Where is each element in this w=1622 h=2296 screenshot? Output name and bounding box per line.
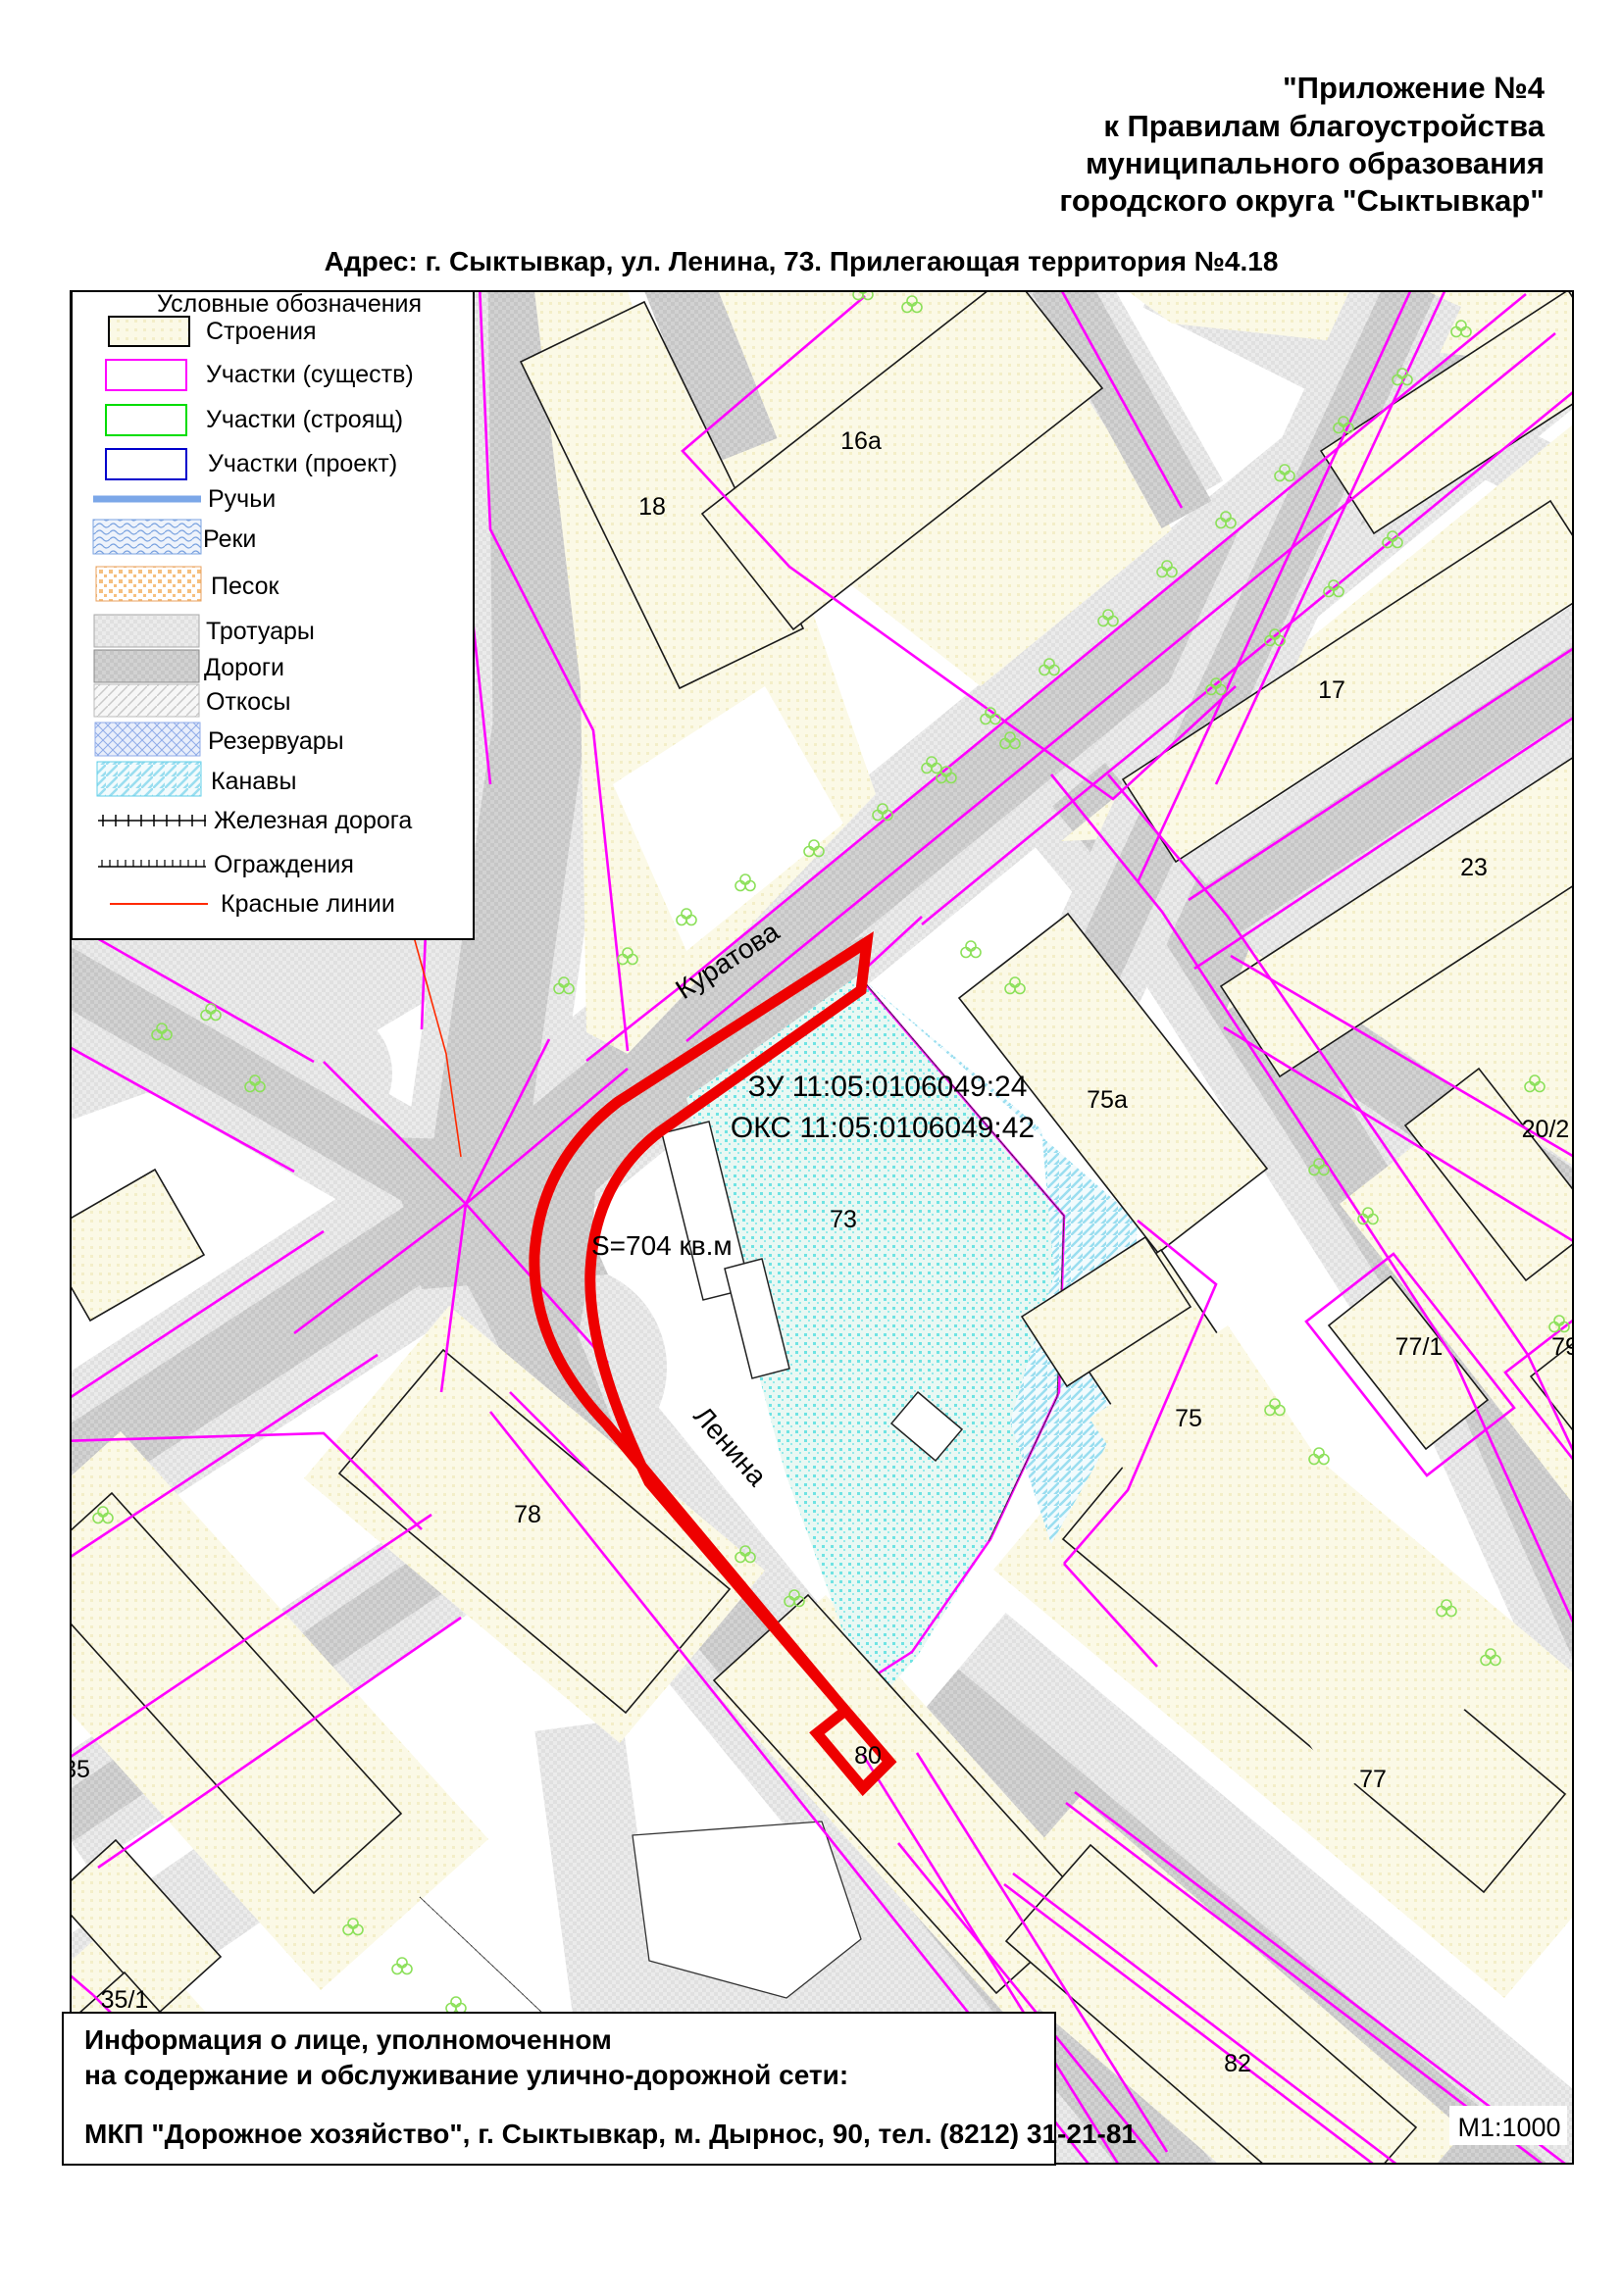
svg-text:Резервуары: Резервуары [208, 727, 344, 755]
svg-text:S=704 кв.м: S=704 кв.м [591, 1230, 733, 1261]
svg-text:77/1: 77/1 [1395, 1333, 1444, 1361]
svg-text:78: 78 [514, 1501, 541, 1528]
svg-text:муниципального образования: муниципального образования [1086, 146, 1545, 180]
svg-text:Участки (существ): Участки (существ) [206, 361, 414, 388]
svg-text:35/1: 35/1 [101, 1986, 149, 2014]
svg-text:Откосы: Откосы [206, 688, 291, 716]
svg-text:к Правилам благоустройства: к Правилам благоустройства [1103, 109, 1545, 143]
svg-text:Канавы: Канавы [211, 768, 296, 795]
svg-text:17: 17 [1318, 676, 1345, 704]
svg-text:"Приложение №4: "Приложение №4 [1283, 71, 1546, 105]
svg-text:Адрес: г. Сыктывкар, ул. Ленин: Адрес: г. Сыктывкар, ул. Ленина, 73. При… [325, 246, 1279, 276]
svg-text:Дороги: Дороги [204, 654, 284, 681]
svg-text:80: 80 [854, 1742, 882, 1770]
svg-text:75а: 75а [1087, 1086, 1128, 1114]
svg-text:Песок: Песок [211, 573, 280, 600]
svg-text:Участки (проект): Участки (проект) [208, 450, 397, 477]
svg-text:23: 23 [1460, 854, 1488, 881]
svg-text:Железная дорога: Железная дорога [214, 807, 412, 834]
svg-text:МКП "Дорожное хозяйство", г. С: МКП "Дорожное хозяйство", г. Сыктывкар, … [84, 2119, 1137, 2149]
svg-text:Участки (строящ): Участки (строящ) [206, 406, 403, 433]
svg-text:Строения: Строения [206, 318, 317, 345]
svg-text:73: 73 [830, 1206, 857, 1233]
svg-text:77: 77 [1359, 1766, 1387, 1793]
svg-text:Ручьи: Ручьи [208, 485, 276, 513]
svg-text:ОКС 11:05:0106049:42: ОКС 11:05:0106049:42 [731, 1112, 1035, 1144]
svg-text:18: 18 [638, 493, 666, 521]
svg-text:Условные обозначения: Условные обозначения [157, 290, 422, 318]
svg-text:городского округа "Сыктывкар": городского округа "Сыктывкар" [1059, 183, 1545, 218]
svg-text:Ограждения: Ограждения [214, 851, 354, 878]
svg-text:20/2: 20/2 [1522, 1116, 1570, 1143]
svg-text:М1:1000: М1:1000 [1457, 2113, 1560, 2142]
svg-text:Информация о лице, уполномочен: Информация о лице, уполномоченном [84, 2024, 612, 2055]
svg-text:Реки: Реки [203, 525, 256, 553]
svg-text:Красные линии: Красные линии [221, 890, 395, 918]
svg-text:на содержание и обслуживание у: на содержание и обслуживание улично-доро… [84, 2060, 848, 2090]
svg-text:75: 75 [1175, 1405, 1202, 1432]
svg-text:16а: 16а [840, 427, 882, 455]
svg-text:Тротуары: Тротуары [206, 618, 315, 645]
svg-text:ЗУ 11:05:0106049:24: ЗУ 11:05:0106049:24 [748, 1071, 1028, 1103]
svg-text:82: 82 [1224, 2050, 1251, 2077]
